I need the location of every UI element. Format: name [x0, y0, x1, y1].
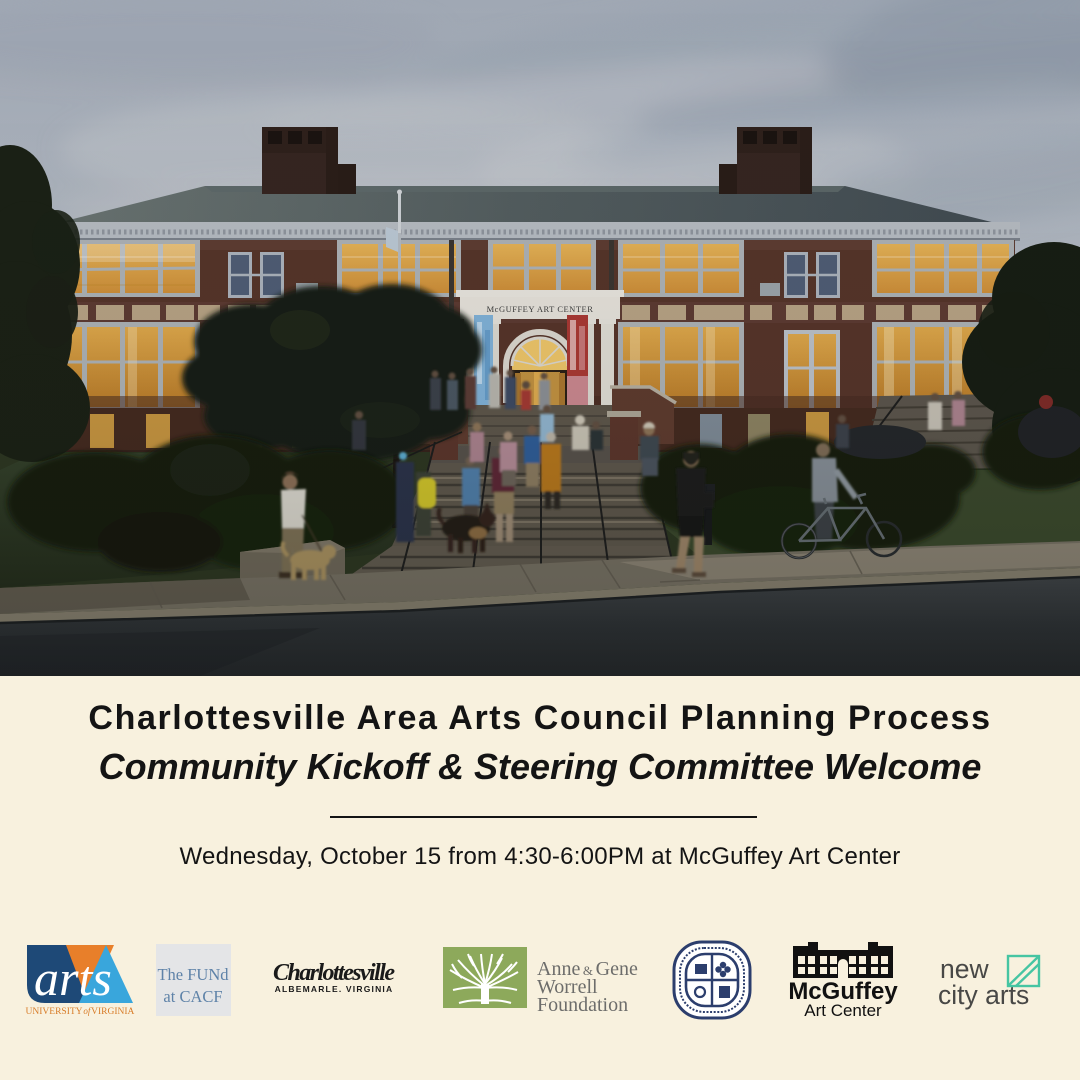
svg-text:UNIVERSITY of VIRGINIA: UNIVERSITY of VIRGINIA	[26, 1006, 135, 1017]
svg-text:The FUNd: The FUNd	[157, 965, 229, 984]
svg-text:Art Center: Art Center	[804, 1001, 882, 1020]
svg-text:Foundation: Foundation	[537, 994, 628, 1016]
svg-text:ALBEMARLE. VIRGINIA: ALBEMARLE. VIRGINIA	[275, 984, 394, 994]
svg-text:city arts: city arts	[938, 980, 1029, 1010]
svg-text:Charlottesville: Charlottesville	[273, 960, 395, 986]
svg-text:arts: arts	[34, 950, 112, 1006]
svg-text:at CACF: at CACF	[163, 987, 222, 1006]
